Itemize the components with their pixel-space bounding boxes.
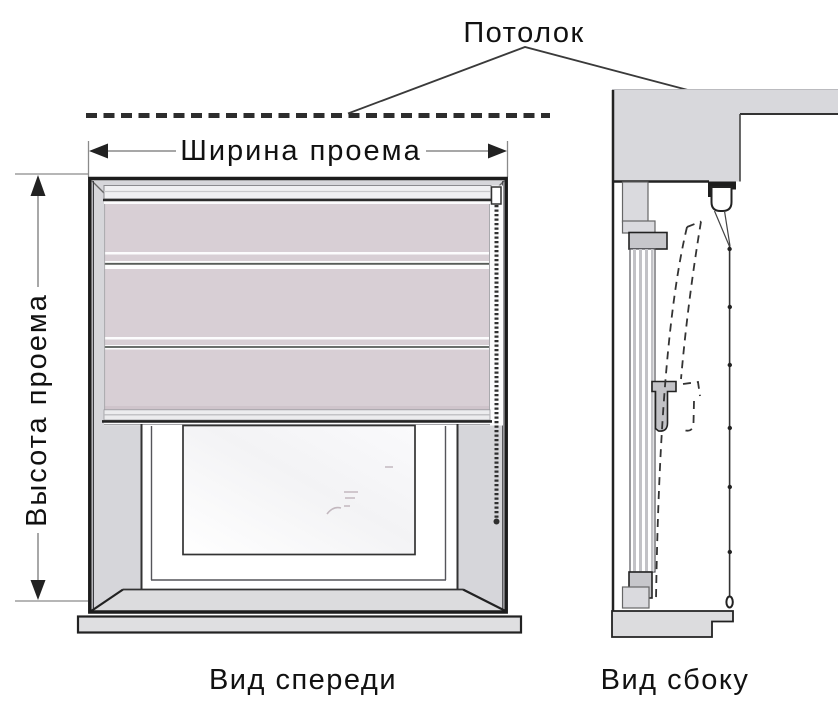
side-view: Вид сбоку bbox=[601, 90, 838, 697]
chain-housing bbox=[492, 187, 502, 204]
glass-pane-line-4 bbox=[651, 249, 654, 572]
sill-top-surface bbox=[91, 590, 507, 612]
ceiling-and-lintel bbox=[612, 90, 838, 182]
glass-pane-line-3 bbox=[645, 249, 648, 572]
fabric-panel-3 bbox=[104, 350, 490, 407]
dashed-handle-clearance bbox=[683, 382, 700, 431]
dashed-fabric-top bbox=[687, 222, 701, 228]
chain-bead-3 bbox=[728, 363, 732, 367]
fabric-panel-1 bbox=[104, 204, 490, 252]
chain-wheel bbox=[712, 187, 732, 211]
width-label: Ширина проема bbox=[180, 135, 421, 167]
height-arrow-top bbox=[31, 175, 46, 196]
window-glass bbox=[183, 426, 415, 555]
fabric-panel-2 bbox=[104, 269, 490, 337]
fabric-bottom-hem bbox=[104, 406, 490, 410]
chain-end-bead bbox=[494, 519, 500, 525]
chain-end-loop bbox=[726, 597, 732, 608]
sash-top-profile bbox=[629, 233, 667, 250]
blind-mechanism-side bbox=[708, 182, 736, 608]
glass-pane-line-2 bbox=[639, 249, 642, 572]
measurement-diagram: Потолок Ширина проема Высота проема bbox=[0, 0, 838, 706]
frame-foot bbox=[623, 587, 650, 608]
frame-head-step bbox=[623, 221, 656, 233]
width-arrow-right bbox=[488, 144, 507, 159]
width-dimension: Ширина проема bbox=[89, 135, 508, 177]
ceiling-label: Потолок bbox=[463, 17, 584, 49]
glass-pane-line-1 bbox=[633, 249, 636, 572]
chain-bead-5 bbox=[728, 485, 732, 489]
sill-board bbox=[78, 617, 521, 633]
window-front bbox=[141, 424, 458, 590]
chain-bead-1 bbox=[727, 247, 731, 251]
lowered-blind-dashed bbox=[656, 222, 701, 601]
fold-strip-1 bbox=[104, 255, 490, 262]
fold-strip-2 bbox=[104, 340, 490, 346]
chain-bead-4 bbox=[728, 426, 732, 430]
height-arrow-bottom bbox=[31, 580, 46, 600]
window-sill-side bbox=[612, 611, 733, 637]
front-view-caption: Вид спереди bbox=[209, 664, 397, 696]
dashed-fabric-back bbox=[681, 222, 701, 380]
frame-head bbox=[623, 182, 649, 222]
diagram-canvas: Потолок Ширина проема Высота проема bbox=[0, 0, 838, 706]
chain-bead-6 bbox=[728, 550, 732, 554]
side-view-caption: Вид сбоку bbox=[601, 664, 750, 696]
blind-headrail bbox=[104, 186, 491, 200]
window-handle-profile bbox=[652, 382, 676, 432]
width-arrow-left bbox=[89, 144, 108, 159]
height-dimension: Высота проема bbox=[15, 174, 88, 601]
height-label: Высота проема bbox=[21, 293, 53, 527]
chain-v-lines bbox=[715, 211, 731, 246]
window-frame-profile bbox=[623, 182, 677, 608]
chain-bead-2 bbox=[728, 305, 732, 309]
front-view: Вид спереди bbox=[78, 179, 521, 697]
